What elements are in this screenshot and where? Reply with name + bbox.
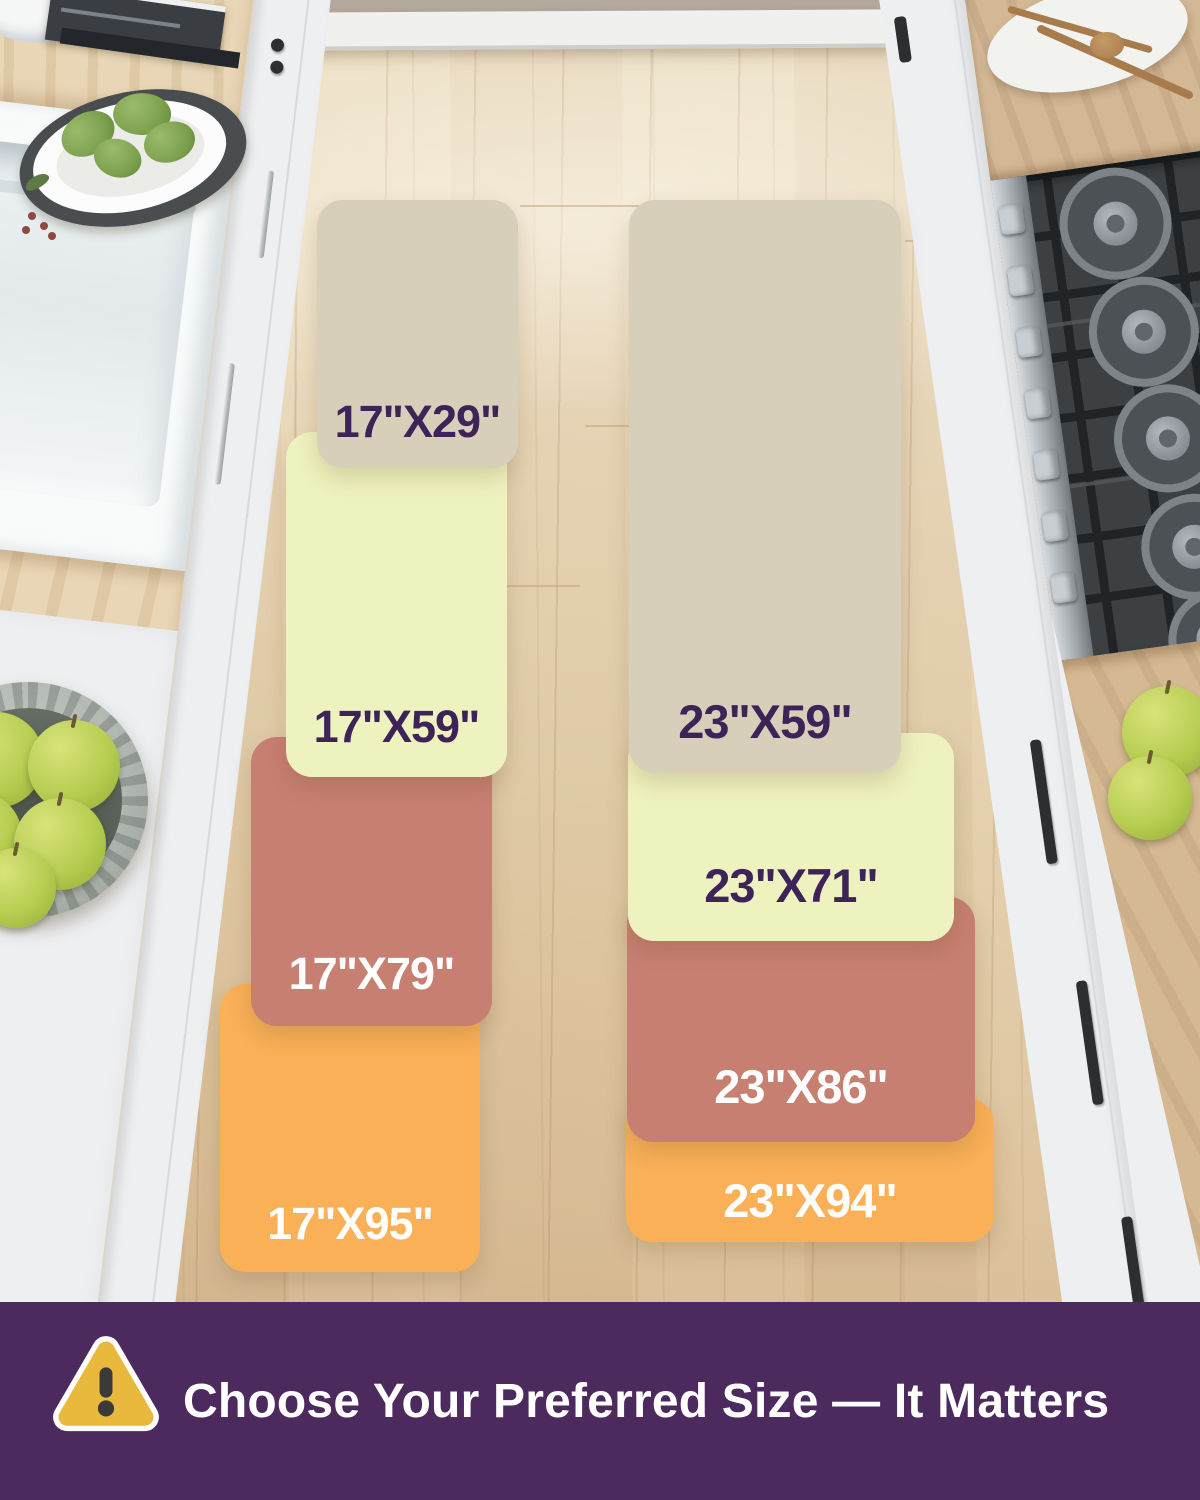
size-label: 17"X95" bbox=[267, 1201, 433, 1246]
size-label: 17"X79" bbox=[289, 951, 455, 996]
warning-triangle-icon bbox=[52, 1330, 160, 1448]
floor-seam bbox=[520, 205, 640, 207]
stove-burner bbox=[1082, 270, 1200, 394]
berry bbox=[48, 232, 56, 240]
green-apple bbox=[1108, 756, 1192, 840]
stove-knob bbox=[1032, 448, 1060, 481]
stove-knob bbox=[1050, 571, 1078, 604]
stove-knob bbox=[1024, 387, 1052, 420]
size-swatch-17x29: 17"X29" bbox=[317, 200, 518, 468]
stove-knob bbox=[1015, 325, 1043, 358]
berry bbox=[40, 222, 48, 230]
stove-burner bbox=[1134, 487, 1200, 607]
green-apple bbox=[28, 720, 120, 812]
stove-knob bbox=[1041, 509, 1069, 542]
wooden-spoon bbox=[1090, 32, 1124, 58]
stove-knob bbox=[998, 202, 1026, 235]
size-label: 23"X94" bbox=[723, 1177, 896, 1224]
size-swatch-23x59: 23"X59" bbox=[629, 200, 901, 773]
size-swatch-17x79: 17"X79" bbox=[251, 737, 492, 1026]
banner-headline: Choose Your Preferred Size — It Matters bbox=[183, 1302, 1109, 1500]
size-label: 23"X86" bbox=[714, 1063, 887, 1110]
size-label: 17"X59" bbox=[314, 704, 480, 749]
stove-knob bbox=[1007, 264, 1035, 297]
berry bbox=[22, 226, 30, 234]
size-swatch-17x59: 17"X59" bbox=[286, 432, 507, 777]
bottom-banner: Choose Your Preferred Size — It Matters bbox=[0, 1302, 1200, 1500]
baseboard bbox=[288, 9, 890, 50]
size-swatch-17x95: 17"X95" bbox=[220, 984, 480, 1272]
stove-burner bbox=[1052, 160, 1178, 286]
size-label: 23"X59" bbox=[678, 698, 851, 745]
berry bbox=[28, 212, 36, 220]
size-label: 23"X71" bbox=[704, 862, 877, 909]
product-size-infographic: 17"X29" 17"X59" 17"X79" 17"X95" 23"X59" … bbox=[0, 0, 1200, 1500]
size-label: 17"X29" bbox=[335, 399, 501, 444]
